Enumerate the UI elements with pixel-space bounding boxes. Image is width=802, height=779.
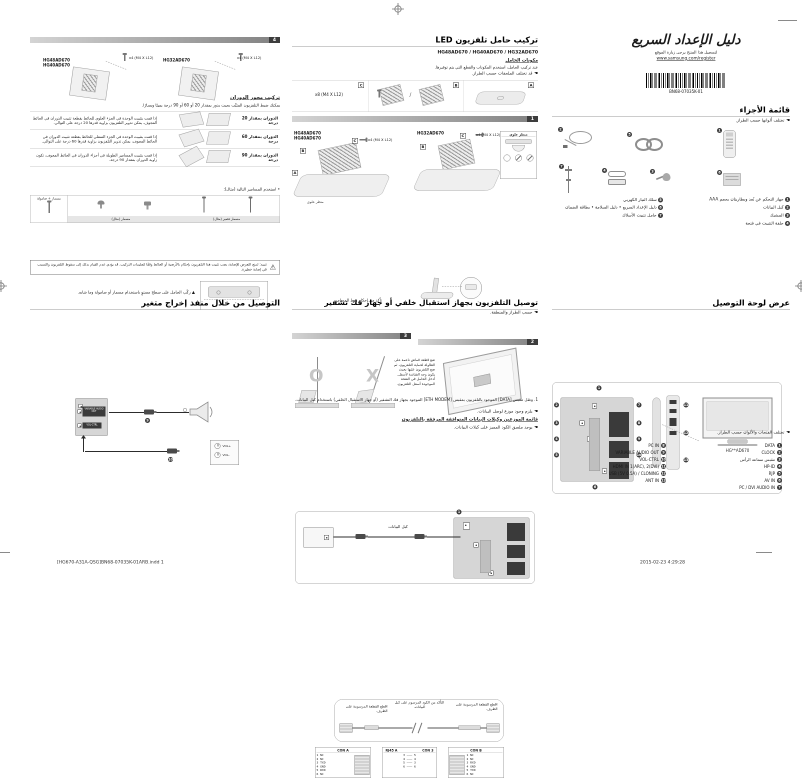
cable-break [418,723,423,734]
audio-plug [144,410,154,415]
port-row: USB (5V 0.5A) / CLONING12 [552,470,666,477]
part-item: 5 سلك التيار الكهربي [552,197,663,203]
leader-line [215,61,236,70]
stb-diagram: 1 كبل البيانات [295,511,535,584]
map-row: 6 ——— 6 [384,765,436,769]
tv-topview-icon [206,132,231,145]
swivel-desc: إذا قمت بتثبيت المسامير الطويلة في أجزاء… [30,148,159,167]
component-a: A [463,81,538,112]
volume-controller: VOL+ VOL- [210,440,239,465]
swivel-row: الدوران بمقدار 60 درجة إذا قمت بتثبيت ال… [30,130,280,149]
swivel-diagram [159,148,234,167]
slash: / [410,92,412,99]
cable-end-label-left: اقطع القطعة المرسومة على الطرف. [343,705,388,714]
swivel-row: الدوران بمقدار 90 درجة إذا قمت بتثبيت ال… [30,148,280,167]
footer-datetime: 2015-02-23 4:29:28 [640,560,685,565]
long-screw-icon [250,199,251,213]
stb-instruction: 1. وصّل مقبس [DATA] الموجود بالتلفزيون ب… [292,397,538,403]
data-port [463,523,470,530]
fastener-bullet: • استخدم المسامير التالية (مثال): [30,187,280,192]
fastener-icons-cell: مسمار (مثال) مسمار قصير (مثال) [68,195,280,223]
port-row: CLOCK2 [672,449,782,456]
zoom-circle [460,277,482,299]
ok-letter: O [309,366,323,386]
port-row: ANT IN13 [552,477,666,484]
port-block [507,562,525,575]
volctrl-label: VOL-CTRL [83,423,102,429]
ok-icon [504,155,511,162]
variable-audio-label: VARIABLE AUDIO OUT [83,407,106,417]
callout: 1 [597,386,602,391]
base-icon [412,169,502,191]
port-row: RJP5 [672,470,782,477]
cover-page: دليل الإعداد السريع لتسجيل هذا المنتج ير… [552,30,790,560]
cable-list-note: ☚يوجد ملصق الكود المميز على كبلات البيان… [292,425,538,430]
fastener-strip: مسمار + صامولة مسمار (مثال) مسمار قصير (… [30,195,280,223]
components-note: ☚قد تختلف الملحقات حسب الطراز. [292,71,538,76]
callout: 10 [168,457,173,462]
leader-line [442,286,462,287]
registration-mark-right [795,277,802,296]
hand-icon: ☚ [534,409,538,414]
components-row: A B / C x8 (M4 X L12) [292,80,538,112]
wallmount-diagrams: HG48AD670 HG40AD670 x4 (M4 X L12) HG32AD… [30,52,280,100]
parts-legend-right: 1 جهاز التحكم عن بُعد وبطاريتان بحجم AAA… [670,197,790,227]
speaker-icon [189,401,215,425]
varout-panel: VARIABLE AUDIO OUT VOL-CTRL [75,398,108,436]
tv-topview-icon [179,112,204,128]
component-c: C x8 (M4 X L12) [292,81,368,112]
volctrl-wire [85,451,175,452]
step-bar-4: 4 [30,37,280,43]
stand-models: HG48AD670 / HG40AD670 / HG32AD670 [292,50,538,55]
connector-face [355,755,370,775]
warning-box: ⚠ تنبيه: لمنع التعرض للإصابة، يجب تثبيت … [30,260,280,275]
screw-icon [48,202,50,213]
model-label-right: HG32AD670 [417,131,444,136]
tv-topview-icon [206,113,231,126]
swivel-title: تركيب محور الدوران [30,95,280,101]
cable-holder-icon [565,166,572,193]
part-num: 7 [559,164,564,169]
port-row: AV IN6 [672,477,782,484]
swivel-label: الدوران بمقدار 60 درجة [234,130,280,149]
fastener-captions: مسمار (مثال) مسمار قصير (مثال) [68,216,280,223]
port-row: PC IN8 [552,442,666,449]
part-num: 1 [717,128,722,133]
vol-plus-label: VOL+ [223,444,232,448]
parts-icons: 1 5 2 7 4 3 6 [552,126,790,195]
screw-icon [124,55,126,62]
map-box: RJ45 ACON 3 3 ——— 5 4 ——— 4 5 ——— 3 6 ——… [382,747,437,778]
screw-spec: x4 (M4 X L12) [129,56,153,60]
part-num: 3 [650,169,655,174]
ports-legend-right: DATA1 CLOCK2 مقبس سماعة الرأس3 HP-ID4 RJ… [672,442,782,491]
vol-knob [215,443,221,449]
parts-list-title: قائمة الأجزاء [552,105,790,117]
caption-screw: مسمار (مثال) [68,216,174,223]
wrong-icon [515,155,522,162]
fix-ring-icon [608,171,628,188]
registration-mark-left [0,277,7,296]
callout: 4 [554,437,559,442]
step-bar-1: 1 [292,116,538,122]
panel-view-title: عرض لوحة التوصيل [552,298,790,310]
pinout-diagram: اقطع القطعة المرسومة على الطرف. اقطع الق… [292,699,538,779]
crop-line-bottom-left [0,552,10,553]
panel-jack [474,543,479,548]
cable-code-tag [365,726,379,731]
data-callout: 1 [457,510,462,515]
register-url: www.samsung.com/register [582,56,790,61]
step2-caption: ضع قطعة قماش ناعمة على الطاولة لحماية ال… [388,358,435,387]
components-text: عند تركيب الحامل، استخدم المكونات والقطع… [292,65,538,70]
callout: 9 [145,418,150,423]
stand-base-icon [474,92,526,105]
port-row: VARIABLE AUDIO OUT9 [552,449,666,456]
jack-icon [78,410,82,414]
swivel-label: الدوران بمقدار 20 درجة [234,111,280,130]
ports-legend: PC IN8 VARIABLE AUDIO OUT9 VOL-CTRL10 HD… [552,442,790,491]
part-num: 4 [602,168,607,173]
data-cable-icon [563,130,596,154]
cable-wire [353,728,413,729]
volctrl-wire-riser [83,438,84,452]
caption-short-screw: مسمار قصير (مثال) [174,216,280,223]
wrong-icon [526,155,533,162]
power-cord-icon [633,136,666,153]
warning-text: تنبيه: لمنع التعرض للإصابة، يجب تثبيت هذ… [34,263,267,273]
part-item: 2 كبل البيانات [670,205,790,211]
footer-right-wrap: 2015-02-23 4:29:28 [640,556,780,566]
stb-hub-note: ☚يلزم وجود موزع لوصل البيانات. [292,409,538,414]
registration-mark-top [392,0,404,19]
swivel-text: يمكنك ضبط التلفزيون المثبَّت بحيث يدور ب… [30,103,280,108]
tv-topview-icon [179,129,205,148]
screw-spec: x4 (M4 X L12) [237,56,261,60]
stand-guide-icon [419,84,444,106]
guides-icon [723,173,741,186]
screw-ok-icons [502,155,536,162]
parts-legend: 5 سلك التيار الكهربي 6 دليل الإعداد السر… [552,197,790,227]
hand-icon: ☚ [534,425,538,430]
panel-note: ☚تختلف الفتحات والألوان حسب الطراز. [552,430,790,435]
hand-icon: ☚ [534,71,538,76]
models-label-left: HG48AD670 HG40AD670 [294,131,321,141]
hand-icon: ☚ [534,310,538,315]
callout: 7 [637,403,642,408]
screw-spec: x4 (M4 X L12) [476,133,500,137]
manual-page: { "page":{ "footer_left":"[HG670-A31A-QS… [0,0,802,576]
port-block [507,545,525,558]
data-jack [592,404,597,409]
swivel-desc: إذا قمت بتثبيت الوحدة في الجزء السفلي لل… [30,130,159,149]
connector-b-icon [487,724,500,733]
stand-title: تركيب حامل تلفزيون LED [292,35,538,47]
barcode-text: BN68-07035K-01 [646,90,726,95]
step-bar-3: 3 [292,333,411,339]
port-row: DATA1 [672,442,782,449]
swivel-row: الدوران بمقدار 20 درجة إذا قمت بتثبيت ال… [30,111,280,130]
cable-list-title: قائمة الموزعين وكبلات البيانات المتوافقة… [292,417,538,422]
screw-icon [379,91,381,98]
swivel-table: الدوران بمقدار 20 درجة إذا قمت بتثبيت ال… [30,111,280,167]
models-label-left: HG48AD670 HG40AD670 [43,58,70,68]
stb-rear-panel [454,518,530,579]
jack-icon [78,424,82,428]
port-row: VOL-CTRL10 [552,456,666,463]
flat-note-text: ▲ ركّب الحامل على سطح مستوٍ باستخدام مسم… [50,290,195,295]
model-label-right: HG32AD670 [163,58,190,63]
arrow-up [81,435,86,439]
stand-guide-icon [379,84,404,106]
stand-neck [432,278,439,294]
anchor-icon [98,201,105,205]
stb-note: ☚حسب الطراز والمنطقة. [292,310,538,315]
port-row: HP-ID4 [672,463,782,470]
callout: 11 [684,403,689,408]
hand-icon: ☚ [786,118,790,123]
connector-a-icon [340,724,353,733]
callout: 2 [554,403,559,408]
part-item: 1 جهاز التحكم عن بُعد وبطاريتان بحجم AAA [670,197,790,203]
variable-audio-jack: VARIABLE AUDIO OUT [78,407,106,417]
pin: 6 NC [467,772,503,776]
barcode [646,73,726,88]
port-row: PC / DVI AUDIO IN7 [672,484,782,491]
volctrl-jack: VOL-CTRL [78,423,102,429]
stb-title: توصيل التلفزيون بجهاز استقبال خلفي أو جه… [292,298,538,310]
data-cable-label: كبل البيانات [376,525,421,530]
port-block [507,523,525,541]
volctrl-plug [167,449,177,454]
step1-diagrams: HG48AD670 HG40AD670 B C x4 (M4 X L12) A … [292,131,538,206]
correct-lift-diagram: O [295,357,341,416]
screw-icon [360,139,367,141]
vol-knob [215,452,221,458]
component-b: B / [368,81,463,112]
data-cable-wire [334,537,461,538]
port-row: مقبس سماعة الرأس3 [672,456,782,463]
footer-filename: [HG670-A31A-QSG]BN68-07035K-01ARB.indd 1 [57,560,164,565]
cable-break [412,723,417,734]
guide-icon [318,142,362,176]
port-row: HDMI IN 1(ARC), 2(DVI)11 [552,463,666,470]
cable-connector [415,534,425,539]
panel-jack [580,421,585,426]
part-item: 7 حامل تثبيت الأسلاك [552,213,663,219]
top-view-tv [505,139,532,144]
parts-note: ☚تختلف ألوانها حسب الطراز. [552,118,790,123]
ports-legend-left: PC IN8 VARIABLE AUDIO OUT9 VOL-CTRL10 HD… [552,442,666,491]
crop-line-top-right [778,20,797,21]
top-view-stand [512,145,525,152]
base-icon [292,174,391,197]
footer-left-wrap: [HG670-A31A-QSG]BN68-07035K-01ARB.indd 1 [57,556,317,566]
tv-topview-icon [179,146,205,167]
top-view-inset: منظر علوي [500,131,537,179]
connector-face [450,755,465,775]
callout: 3 [554,421,559,426]
cable-drawing: اقطع القطعة المرسومة على الطرف. اقطع الق… [334,699,504,742]
tv-topview-icon [206,150,231,163]
part-item: 4 حلقة التثبيت في فتحة [670,221,790,227]
part-item: 6 دليل الإعداد السريع • دليل السلامة • ب… [552,205,663,211]
swivel-desc: إذا قمت بتثبيت الوحدة في الجزء العلوي لل… [30,111,159,130]
step-bar-2: 2 [418,339,538,345]
varout-diagram: VARIABLE AUDIO OUT VOL-CTRL 9 10 VOL+ VO… [30,398,280,478]
guide-icon [438,139,475,170]
top-view-caption: منظر علوي [307,200,324,204]
callout: 9 [637,437,642,442]
swivel-diagram [159,111,234,130]
screw-spec: x4 (M4 X L12) [368,138,392,142]
jack-column [480,540,491,573]
wallmount-page: 4 HG48AD670 HG40AD670 x4 (M4 X L12) HG32… [30,30,280,560]
stand-page: تركيب حامل تلفزيون LED HG48AD670 / HG40A… [292,30,538,560]
register-note: لتسجيل هذا المنتج يرجى زيارة الموقع [582,50,790,55]
leader-line [106,61,127,70]
components-title: مكونات الحامل [292,58,538,63]
warning-icon: ⚠ [270,264,276,271]
anchor-icon [144,202,151,206]
cable-end-label-right: اقطع القطعة المرسومة على الطرف. [448,703,498,712]
con-a-box: CON A 1 NC 2 NC 3 TXD 4 GND 5 RXD 6 NC [315,747,371,778]
logo-title: دليل الإعداد السريع [582,32,790,48]
long-screw-icon [203,199,204,213]
cable-connector [356,534,366,539]
parts-legend-left: 5 سلك التيار الكهربي 6 دليل الإعداد السر… [552,197,663,227]
remote-control-icon [723,130,736,158]
con-b-box: CON B 1 NC 2 NC 3 RXD 4 GND 5 TXD 6 NC [448,747,504,778]
pin: 6 NC [317,772,353,776]
vol-minus-label: VOL- [223,453,230,457]
cable-code-tag [459,726,481,731]
swivel-label: الدوران بمقدار 90 درجة [234,148,280,167]
top-view-label: منظر علوي [502,133,536,138]
wrong-letter: X [366,366,379,386]
part-num: 6 [717,170,722,175]
screw-nut-cell: مسمار + صامولة [30,195,68,223]
hand-icon: ☚ [786,430,790,435]
speaker-jack [183,408,187,412]
callout: 8 [637,421,642,426]
clamp-icon [656,172,672,185]
brand-logo: دليل الإعداد السريع لتسجيل هذا المنتج ير… [582,32,790,61]
stb-device [304,528,334,548]
part-num: 5 [627,132,632,137]
part-item: 3 المشبك [670,213,790,219]
screw-spec: x8 (M4 X L12) [315,93,343,98]
cable-mid-label: التأكد من الكود المرسوم على كبل البيانات… [395,701,445,710]
varout-title: التوصيل من خلال منفذ إخراج متغير [30,298,280,310]
